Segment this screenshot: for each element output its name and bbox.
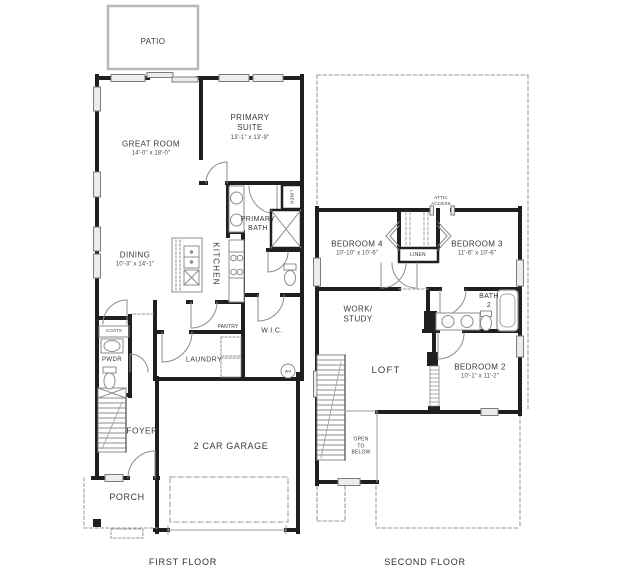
room-name: PRIMARY SUITE bbox=[225, 113, 275, 134]
room-dims: 10'-1" x 11'-2" bbox=[454, 374, 506, 382]
room-dims: 10'-10" x 10'-6" bbox=[331, 251, 383, 259]
water-heater-label: WH bbox=[285, 368, 292, 373]
first-floor-stairs bbox=[98, 388, 126, 452]
second-floor-doors bbox=[381, 263, 466, 359]
pantry-label: PANTRY bbox=[217, 324, 238, 331]
room-name: ATTIC ACCESS bbox=[430, 195, 452, 207]
garage-parking-outline bbox=[170, 477, 288, 522]
porch-post bbox=[93, 519, 101, 527]
toilet-tank bbox=[284, 264, 296, 270]
bedroom4-label: BEDROOM 4 10'-10" x 10'-6" bbox=[331, 239, 383, 258]
bath-chase bbox=[424, 311, 437, 331]
bedroom2-label: BEDROOM 2 10'-1" x 11'-2" bbox=[454, 362, 506, 381]
front-door bbox=[128, 451, 155, 478]
powder-sink bbox=[104, 341, 120, 352]
wic-door bbox=[258, 295, 284, 321]
room-name: OPEN TO BELOW bbox=[351, 436, 371, 456]
bedroom3-door bbox=[392, 263, 417, 288]
furred-wall-hatch bbox=[430, 366, 439, 406]
loft-label: LOFT bbox=[371, 365, 400, 377]
primary-bath-label: PRIMARY BATH bbox=[237, 215, 279, 233]
first-floor-geometry bbox=[84, 6, 302, 538]
bedroom2-door bbox=[438, 333, 464, 359]
toilet-bowl bbox=[285, 271, 296, 286]
room-name: DINING bbox=[116, 250, 154, 260]
linen-label-first: LINEN bbox=[290, 190, 295, 204]
bedroom4-door bbox=[381, 263, 406, 288]
room-name: GREAT ROOM bbox=[122, 139, 180, 149]
bath2-sink bbox=[461, 316, 473, 328]
attic-access-jamb bbox=[430, 206, 434, 215]
patio-label: PATIO bbox=[141, 37, 166, 47]
porch-label: PORCH bbox=[109, 492, 145, 504]
primary-suite-label: PRIMARY SUITE 13'-1" x 13'-9" bbox=[225, 113, 275, 143]
room-name: BEDROOM 2 bbox=[454, 362, 506, 372]
bedroom-closets bbox=[386, 212, 451, 250]
floor-plan-geometry bbox=[0, 0, 617, 582]
porch-steps bbox=[111, 529, 143, 538]
great-room-label: GREAT ROOM 14'-0" x 18'-0" bbox=[122, 139, 180, 158]
room-name: BEDROOM 3 bbox=[451, 239, 503, 249]
second-floor-stairs bbox=[317, 355, 377, 482]
open-to-below-label: OPEN TO BELOW bbox=[351, 436, 371, 456]
wall-block bbox=[428, 406, 440, 413]
patio-slider-door bbox=[172, 77, 198, 82]
washer bbox=[221, 337, 241, 356]
first-floor-title: FIRST FLOOR bbox=[149, 557, 217, 569]
wall-block bbox=[427, 352, 438, 366]
room-name: BATH 2 bbox=[476, 292, 502, 310]
room-dims: 14'-0" x 18'-0" bbox=[122, 151, 180, 159]
bath2-toilet-bowl bbox=[481, 316, 492, 331]
coats-door bbox=[103, 300, 127, 324]
floor-plan: PATIO GREAT ROOM 14'-0" x 18'-0" PRIMARY… bbox=[0, 0, 617, 582]
room-name: PRIMARY BATH bbox=[237, 215, 279, 233]
linen-label-second: LINEN bbox=[410, 252, 426, 259]
bath2-door bbox=[440, 290, 466, 316]
bedroom3-label: BEDROOM 3 11'-6" x 10'-6" bbox=[451, 239, 503, 258]
pantry-door bbox=[191, 302, 217, 328]
room-name: BEDROOM 4 bbox=[331, 239, 383, 249]
powder-toilet-bowl bbox=[104, 373, 115, 389]
laundry-label: LAUNDRY bbox=[186, 355, 222, 364]
powder-toilet-tank bbox=[103, 367, 116, 373]
patio-slider-door bbox=[147, 73, 173, 78]
attic-access-label: ATTIC ACCESS bbox=[430, 195, 452, 207]
foyer-label: FOYER bbox=[126, 425, 157, 436]
primary-suite-door bbox=[206, 162, 227, 183]
room-dims: 13'-1" x 13'-9" bbox=[225, 135, 275, 143]
room-dims: 11'-6" x 10'-6" bbox=[451, 251, 503, 259]
room-dims: 10'-3" x 14'-1" bbox=[116, 262, 154, 270]
coats-label: COATS bbox=[106, 328, 122, 334]
bath-sink bbox=[231, 192, 243, 204]
wic-label: W.I.C. bbox=[261, 326, 282, 335]
bath2-label: BATH 2 bbox=[476, 292, 502, 310]
bath2-sink bbox=[442, 316, 454, 328]
kitchen-label: KITCHEN bbox=[212, 242, 221, 286]
second-floor-title: SECOND FLOOR bbox=[384, 557, 466, 569]
garage-label: 2 CAR GARAGE bbox=[194, 441, 269, 453]
work-study-label: WORK/ STUDY bbox=[338, 305, 378, 326]
powder-door bbox=[130, 354, 148, 372]
room-name: WORK/ STUDY bbox=[338, 305, 378, 326]
dining-label: DINING 10'-3" x 14'-1" bbox=[116, 250, 154, 269]
powder-label: PWDR bbox=[102, 357, 122, 365]
dryer bbox=[221, 358, 241, 377]
attic-access-jamb bbox=[451, 206, 455, 215]
